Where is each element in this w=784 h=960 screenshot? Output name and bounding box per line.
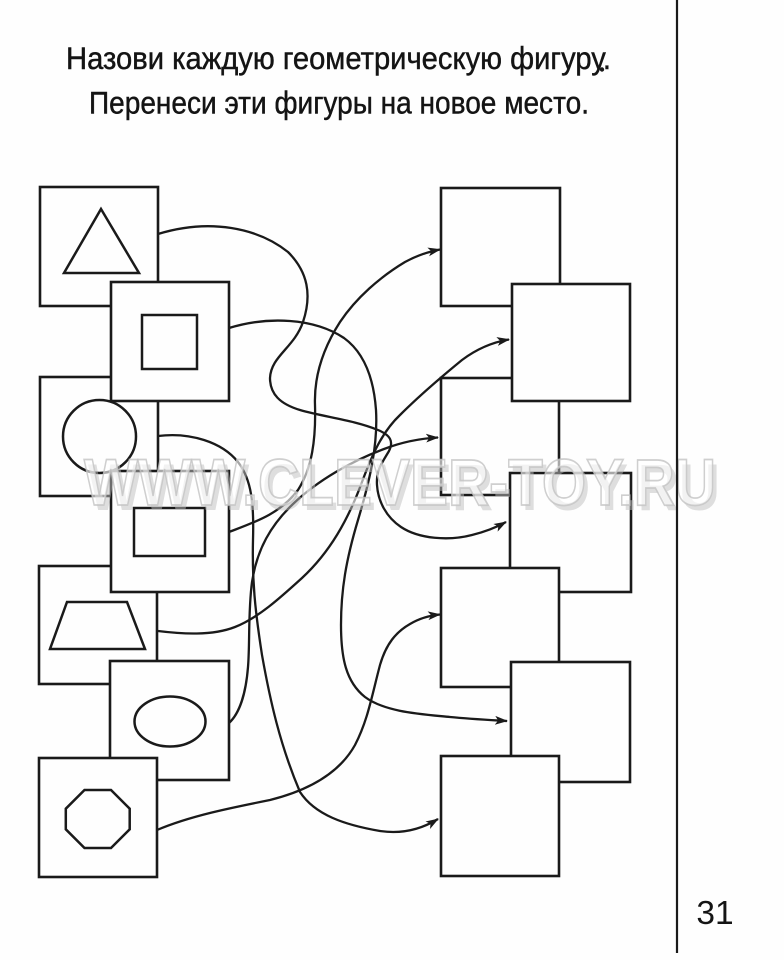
svg-text:31: 31 [696,895,733,932]
svg-text:Назови каждую геометрическую ф: Назови каждую геометрическую фигуру. [66,40,611,76]
svg-text:WWW.CLEVER-TOY.RU: WWW.CLEVER-TOY.RU [84,445,716,519]
svg-text:Перенеси эти фигуры на новое м: Перенеси эти фигуры на новое место. [89,85,589,121]
